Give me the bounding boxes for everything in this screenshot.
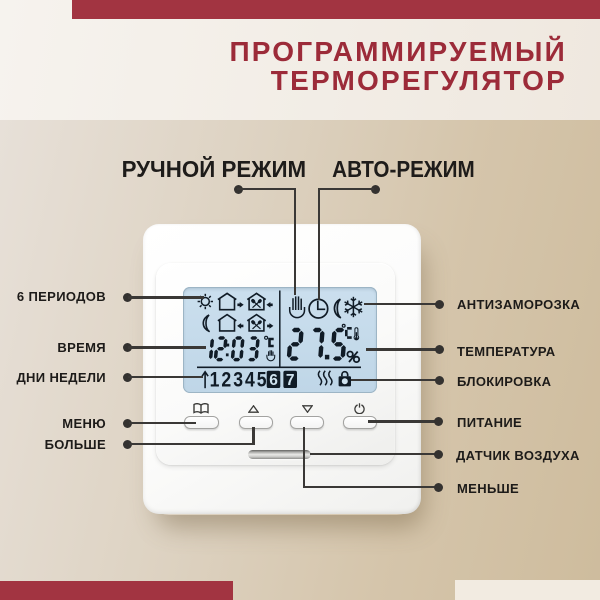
svg-text:7: 7	[285, 372, 294, 389]
svg-text:6: 6	[269, 372, 278, 389]
svg-text:5: 5	[256, 368, 266, 392]
svg-text:1: 1	[209, 368, 219, 392]
svg-text:2: 2	[221, 368, 231, 392]
svg-text:3: 3	[233, 368, 243, 392]
svg-text:4: 4	[244, 368, 254, 392]
